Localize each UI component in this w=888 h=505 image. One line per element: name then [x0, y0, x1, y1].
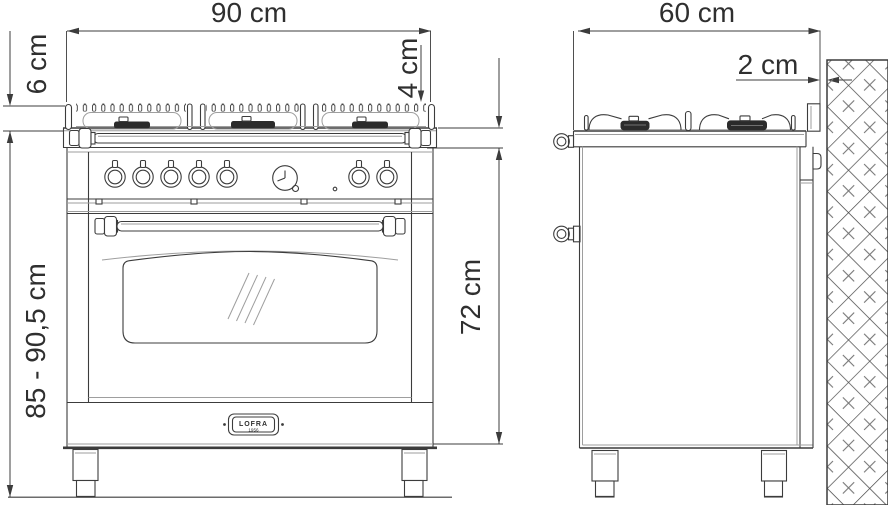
burner-cap	[119, 117, 128, 122]
front-view: 90 cm 6 cm 85 - 90,5 cm 4 cm	[3, 0, 503, 497]
rail-end-cap	[409, 129, 421, 149]
plinth: LOFRA 1956	[63, 414, 437, 448]
hinge	[191, 199, 197, 204]
legs	[73, 450, 427, 498]
dimension-label-worktop-edge: 4 cm	[392, 38, 423, 99]
window-reflection	[228, 273, 275, 325]
leg-foot	[596, 481, 615, 497]
badge-dot	[223, 423, 226, 426]
burner-cap	[242, 117, 251, 122]
range-cooker-dimension-diagram: 90 cm 6 cm 85 - 90,5 cm 4 cm	[0, 0, 888, 505]
leg-foot	[77, 481, 96, 498]
arrowhead-down-icon	[7, 485, 13, 497]
legs	[592, 451, 787, 498]
burner-head	[231, 121, 275, 129]
arrowhead-right-icon	[809, 28, 821, 34]
control-knob	[133, 161, 153, 188]
grate-post	[188, 104, 193, 130]
control-knob	[217, 161, 237, 188]
burner-head	[352, 122, 388, 129]
leg	[402, 450, 427, 481]
leg	[73, 450, 98, 481]
arrowhead-left-icon	[578, 28, 590, 34]
handle-bar	[117, 222, 383, 232]
grate-post	[301, 104, 306, 130]
handle-end-cap	[384, 217, 396, 237]
brand-badge: LOFRA 1956	[223, 414, 284, 435]
grate-end-post	[66, 105, 72, 130]
grate-post	[792, 116, 796, 131]
grate-post	[686, 112, 692, 131]
control-knob	[377, 161, 397, 188]
wall-hatch	[827, 60, 888, 505]
rear-channel	[800, 147, 821, 448]
leg	[592, 451, 618, 482]
arrowhead-right-icon	[419, 28, 431, 34]
grate-post	[201, 104, 206, 130]
side-view: 60 cm 2 cm	[554, 0, 888, 505]
rear-bracket	[813, 154, 821, 170]
arrowhead-down-icon	[496, 432, 502, 444]
rail-end-ring	[554, 134, 574, 150]
hinge	[301, 199, 307, 204]
dimension-body-height: 72 cm	[430, 148, 503, 444]
rail-connector	[405, 133, 409, 145]
hinge	[395, 199, 401, 204]
wall-section	[827, 60, 888, 505]
dimension-label-depth: 60 cm	[659, 0, 735, 28]
rail-end-cap	[70, 131, 80, 146]
dimension-width: 90 cm	[67, 0, 432, 102]
oven-clock	[273, 166, 299, 192]
burner-head	[621, 121, 650, 130]
rail-bar	[94, 134, 406, 144]
control-knob	[189, 161, 209, 188]
burner-head	[114, 122, 150, 129]
arrowhead-right-icon	[808, 77, 820, 83]
dimension-label-wall-gap: 2 cm	[738, 49, 799, 80]
arrowhead-down-icon	[7, 94, 13, 106]
dimension-grate-height: 6 cm	[3, 31, 65, 131]
cooker-front: LOFRA 1956	[8, 104, 452, 498]
control-knob	[105, 161, 125, 188]
rail-end-cap	[79, 129, 91, 149]
dimension-overall-height: 85 - 90,5 cm	[7, 131, 51, 497]
grate-teeth	[76, 104, 186, 112]
rail-end-cap	[421, 131, 431, 146]
oven-door	[67, 217, 433, 403]
brand-year: 1956	[248, 428, 259, 433]
grate-end-post	[429, 105, 435, 130]
rear-upstand	[808, 104, 821, 131]
burner-cap	[357, 117, 366, 122]
technical-drawing: 90 cm 6 cm 85 - 90,5 cm 4 cm	[0, 0, 888, 505]
leg-foot	[405, 481, 424, 498]
indicator-light	[333, 187, 337, 191]
dimension-label-width: 90 cm	[211, 0, 287, 28]
leg	[762, 451, 787, 482]
control-knob	[349, 161, 369, 188]
dimension-label-overall-height: 85 - 90,5 cm	[20, 263, 51, 419]
control-panel	[67, 152, 433, 402]
grate-post	[314, 104, 319, 130]
side-burners	[584, 112, 796, 131]
grate-teeth	[319, 104, 426, 112]
dimension-label-grate-height: 6 cm	[21, 34, 52, 95]
oven-window	[123, 252, 377, 344]
towel-rail	[70, 129, 431, 149]
grate-teeth	[206, 104, 299, 112]
burner-cap	[740, 116, 750, 121]
grate-post	[585, 116, 589, 131]
cooker-side	[554, 104, 821, 497]
handle-end-cap	[95, 219, 105, 235]
side-worktop	[574, 131, 807, 147]
control-knob	[161, 161, 181, 188]
handle-end-ring	[554, 226, 580, 242]
arrowhead-up-icon	[7, 131, 13, 143]
side-body	[580, 147, 814, 448]
leg-foot	[765, 481, 783, 497]
arrowhead-up-icon	[496, 148, 502, 160]
arrowhead-left-icon	[67, 28, 79, 34]
rail-connector	[91, 133, 95, 145]
hinge	[96, 199, 102, 204]
handle-end-cap	[105, 217, 117, 237]
burner-cap	[629, 116, 639, 121]
dimension-label-body-height: 72 cm	[455, 259, 486, 335]
hob-burners	[66, 104, 435, 130]
oven-handle	[95, 217, 405, 237]
handle-end-cap	[396, 219, 406, 235]
badge-dot	[281, 423, 284, 426]
arrowhead-down-icon	[496, 116, 502, 128]
